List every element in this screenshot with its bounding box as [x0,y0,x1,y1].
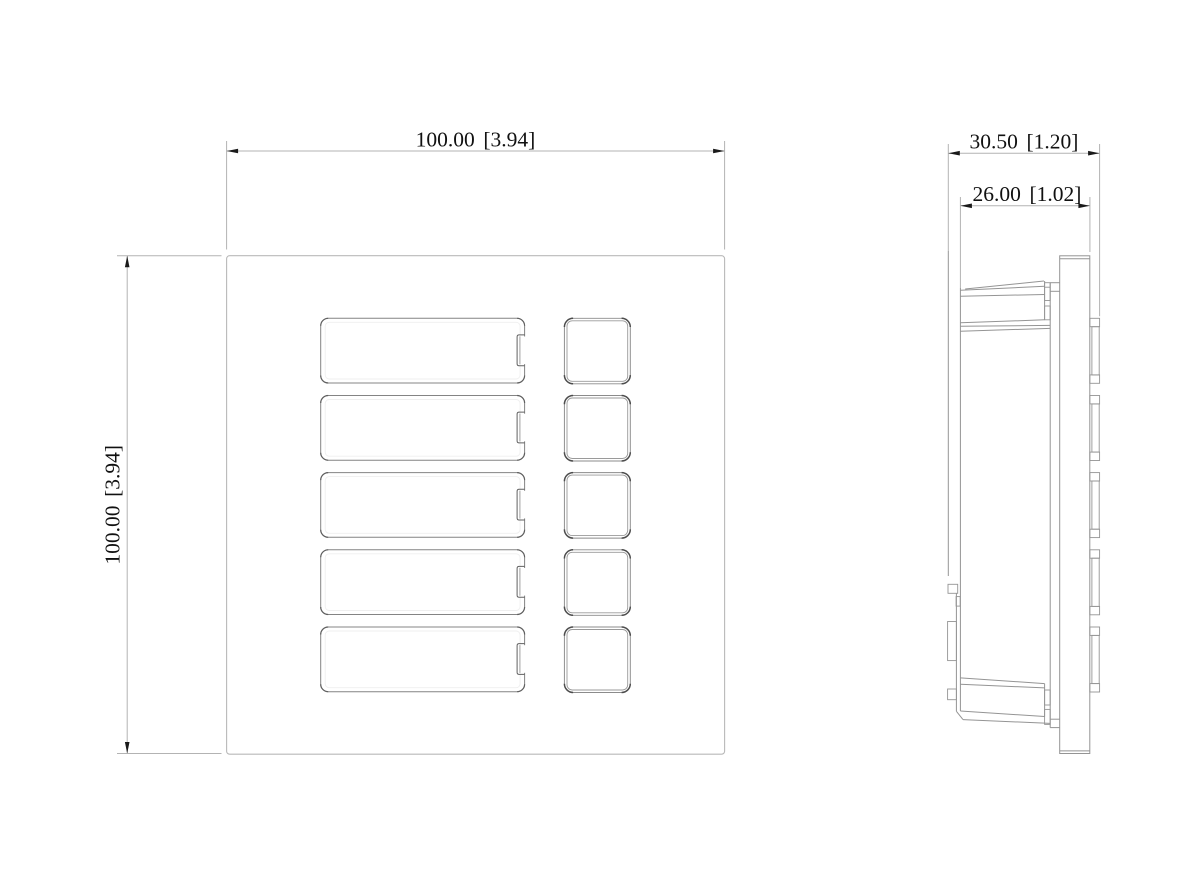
svg-text:100.00 [3.94]: 100.00 [3.94] [101,445,125,565]
svg-text:100.00 [3.94]: 100.00 [3.94] [416,128,536,152]
svg-text:30.50 [1.20]: 30.50 [1.20] [970,130,1079,154]
svg-text:26.00 [1.02]: 26.00 [1.02] [973,182,1082,206]
